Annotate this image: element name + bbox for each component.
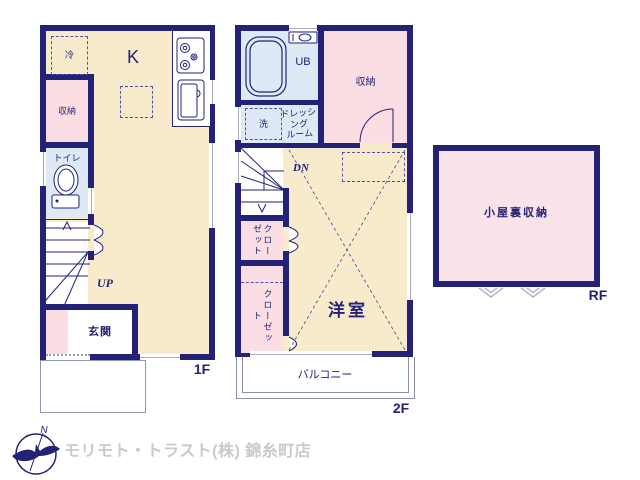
- wall-segment: [132, 304, 138, 360]
- room-stairs-2f: [241, 148, 283, 215]
- wall-segment: [46, 219, 88, 220]
- wall-segment: [88, 251, 94, 260]
- dressing-room-label: ドレッシング ルーム: [277, 107, 321, 142]
- window: [289, 25, 317, 31]
- wall-segment: [283, 215, 289, 227]
- window: [140, 354, 180, 360]
- closet-upper-text: クローゼット: [252, 223, 273, 259]
- fridge-label: 冷: [51, 36, 88, 75]
- floor-1f-label: 1F: [188, 361, 216, 377]
- stairs-down-label: DN: [287, 161, 315, 175]
- window: [209, 80, 215, 104]
- wall-segment: [241, 100, 318, 105]
- storage-2f-label: 収納: [324, 76, 407, 90]
- room-stairs-1f: [46, 222, 88, 304]
- window: [209, 143, 215, 228]
- window: [235, 152, 241, 183]
- floor-2f-label: 2F: [387, 400, 415, 416]
- attic-storage-label: 小屋裏収納: [433, 205, 600, 221]
- porch-outline: [40, 360, 146, 413]
- unit-bath-label: UB: [290, 56, 316, 69]
- window: [407, 213, 413, 300]
- stairs-up-label: UP: [91, 277, 119, 291]
- closet-lower-label: クローゼット: [241, 284, 283, 348]
- closet-upper-label: クローゼット: [241, 221, 283, 260]
- kitchen-label: K: [118, 46, 148, 68]
- toilet-label: トイレ: [46, 152, 88, 164]
- kitchen-table-space: [120, 86, 153, 118]
- western-room-label: 洋室: [318, 300, 378, 322]
- wall-segment: [40, 142, 94, 148]
- floor-rf-label: RF: [581, 287, 615, 303]
- compass-north-label: N: [37, 425, 51, 437]
- balcony-label: バルコニー: [285, 368, 365, 382]
- closet-hanger-line: [241, 282, 283, 283]
- wall-segment: [241, 260, 289, 266]
- kitchen-counter: [172, 31, 210, 127]
- wall-segment: [283, 266, 289, 336]
- storage-door-opening: [360, 143, 392, 148]
- floorplan-canvas: K 冷 収納 トイレ UP 玄関 1F UB 収納 洗 ドレッシング ルーム D…: [0, 0, 640, 480]
- wall-segment: [88, 74, 94, 148]
- wall-segment: [88, 216, 94, 225]
- closet-lower-text: クローゼット: [252, 284, 273, 348]
- company-name: モリモト・トラスト(株) 錦糸町店: [64, 441, 314, 463]
- bed-space: [342, 152, 405, 182]
- door-opening: [88, 188, 94, 214]
- attic-hatch-notches: [479, 288, 545, 297]
- room-entrance-strip: [46, 310, 68, 354]
- storage-1f-label: 収納: [46, 80, 88, 142]
- entrance-label: 玄関: [68, 310, 132, 354]
- compass-icon: [12, 433, 60, 474]
- window: [235, 107, 241, 140]
